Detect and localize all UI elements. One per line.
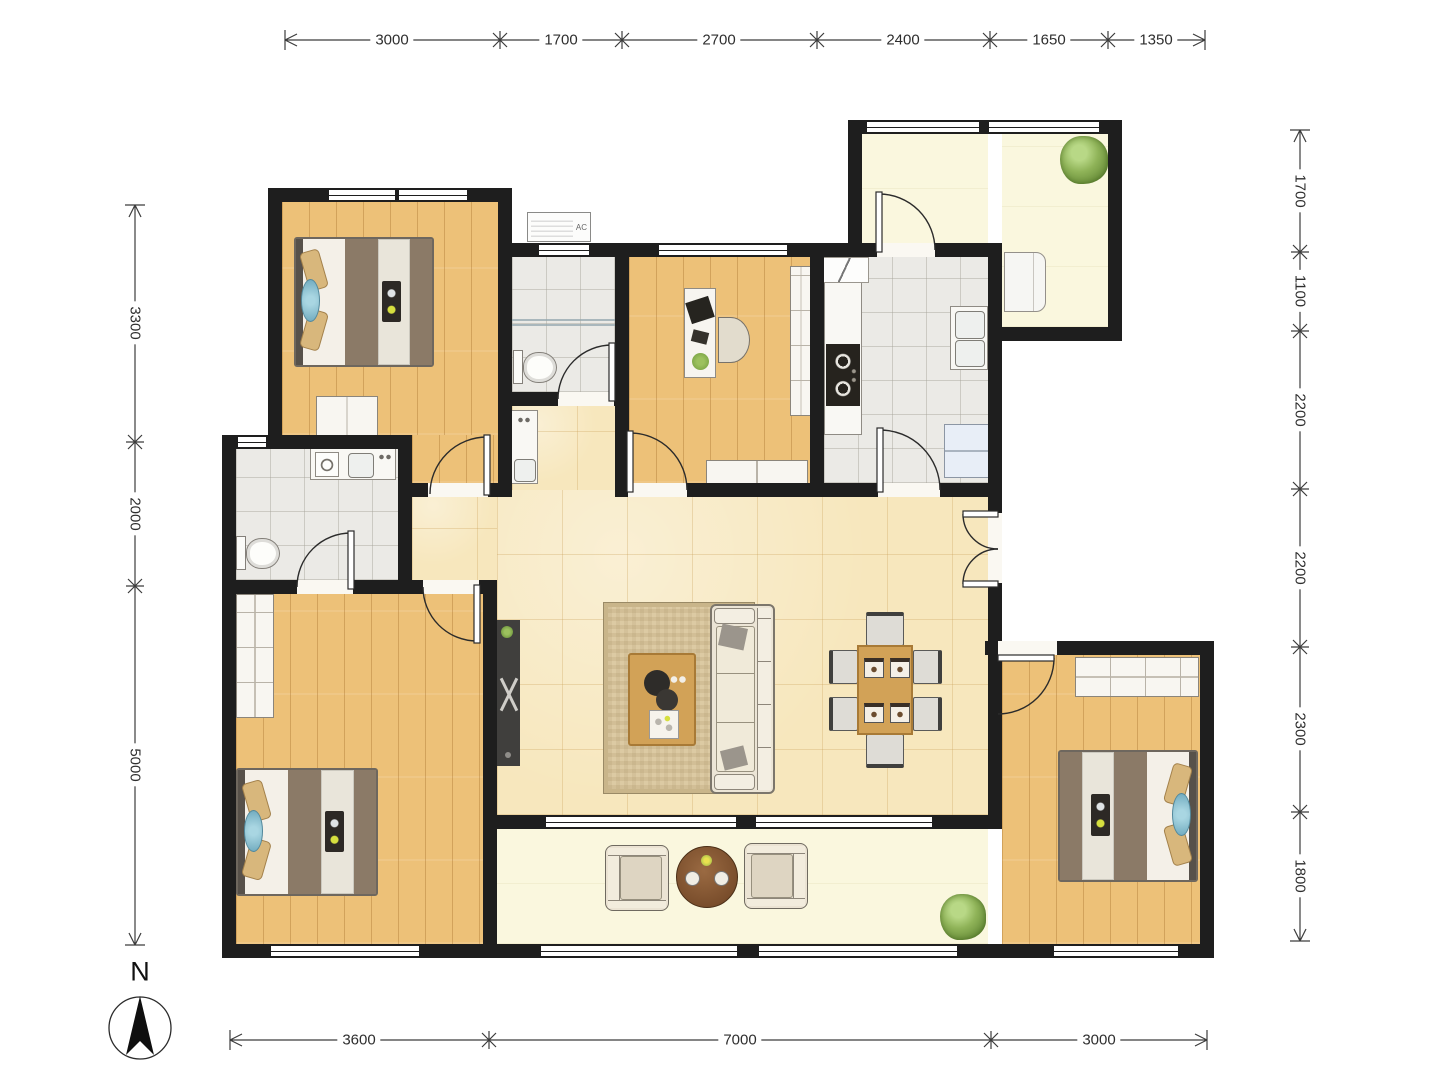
placemat xyxy=(890,703,910,723)
dim-left-0: 3300 xyxy=(127,301,144,344)
refrigerator xyxy=(944,424,990,478)
door-opening-bedroom-bottomleft xyxy=(423,580,479,594)
chair-arm xyxy=(608,848,666,856)
door-opening-entry xyxy=(988,513,1002,583)
chair-arm xyxy=(747,846,805,854)
study-bookcase xyxy=(790,266,812,416)
door-opening-study xyxy=(628,483,687,497)
round-cushion xyxy=(1172,793,1191,837)
compass-icon xyxy=(109,996,171,1059)
sink-basin xyxy=(955,340,985,367)
tray xyxy=(649,710,679,739)
dining-chair xyxy=(866,612,904,646)
cups xyxy=(670,676,686,683)
dim-left-2: 5000 xyxy=(127,743,144,786)
dim-top-5: 1350 xyxy=(1134,32,1177,49)
sink-basin xyxy=(955,311,985,339)
wall-segment xyxy=(222,435,236,594)
sliding-door-living-balcony xyxy=(755,816,933,828)
chair-seat xyxy=(751,854,793,898)
cup xyxy=(714,871,729,886)
wall-segment xyxy=(988,250,1002,655)
door-opening-bedroom-topleft xyxy=(428,483,488,497)
chair-back xyxy=(793,846,805,906)
window xyxy=(866,121,980,133)
sink-basin xyxy=(348,453,374,478)
window xyxy=(538,244,590,256)
desk-plant-icon xyxy=(692,353,709,370)
bed-bottomleft xyxy=(236,768,378,896)
window xyxy=(398,189,468,201)
wall-segment xyxy=(615,243,629,497)
corridor-floor xyxy=(412,483,497,594)
dim-top-0: 3000 xyxy=(370,32,413,49)
window xyxy=(270,945,420,957)
compass-north-label: N xyxy=(130,957,150,988)
sink-counter xyxy=(950,306,988,370)
sofa-armrest xyxy=(714,608,755,624)
dining-table xyxy=(857,645,913,735)
wall-segment xyxy=(498,188,512,497)
wall-segment xyxy=(1108,120,1122,341)
window xyxy=(988,121,1100,133)
plant-icon xyxy=(501,626,513,638)
dining-chair xyxy=(913,697,942,731)
laundry-counter xyxy=(310,448,396,480)
faucet-icon xyxy=(517,417,531,423)
balcony-topright-floor xyxy=(862,134,988,249)
wall-segment xyxy=(848,120,862,257)
knob xyxy=(505,752,511,758)
coffee-table xyxy=(628,653,696,746)
bed-bottomright xyxy=(1058,750,1198,882)
flower-icon xyxy=(701,855,712,866)
dim-top-4: 1650 xyxy=(1027,32,1070,49)
dim-top-1: 1700 xyxy=(539,32,582,49)
ac-grille xyxy=(531,217,573,237)
chair-arm xyxy=(747,898,805,906)
balcony-armchair xyxy=(605,845,669,911)
dim-bottom-1: 7000 xyxy=(718,1032,761,1049)
dim-right-0: 1700 xyxy=(1292,169,1309,212)
placemat xyxy=(890,658,910,678)
wall-segment xyxy=(222,580,236,958)
bowl xyxy=(656,689,678,711)
ac-outdoor-unit: AC xyxy=(527,212,591,242)
bed-tray xyxy=(325,811,344,852)
window xyxy=(658,244,788,256)
toilet-bowl xyxy=(246,538,280,569)
range-hood xyxy=(823,257,869,283)
cup xyxy=(685,871,700,886)
dining-chair xyxy=(866,734,904,768)
wall-segment xyxy=(398,435,412,594)
wardrobe-bottomright xyxy=(1075,657,1199,697)
bed-tray xyxy=(1091,794,1110,836)
toilet-tank xyxy=(236,536,246,570)
window xyxy=(328,189,396,201)
laptop xyxy=(685,296,715,324)
wall-segment xyxy=(268,188,282,449)
dim-top-2: 2700 xyxy=(697,32,740,49)
placemat xyxy=(864,658,884,678)
door-opening-balcony-topright xyxy=(877,243,935,257)
chair-back xyxy=(608,848,620,908)
faucet-icon xyxy=(378,454,392,460)
wall-segment xyxy=(988,641,1002,829)
window xyxy=(758,945,958,957)
study-desk xyxy=(684,288,716,378)
sofa xyxy=(710,604,775,794)
dim-right-2: 2200 xyxy=(1292,388,1309,431)
gas-stove xyxy=(826,344,860,406)
wardrobe-bottomleft xyxy=(236,594,274,718)
dim-top-3: 2400 xyxy=(881,32,924,49)
bed-topleft xyxy=(294,237,434,367)
vanity-counter xyxy=(510,410,538,484)
wall-segment xyxy=(1200,641,1214,958)
wall-segment xyxy=(988,327,1122,341)
placemat xyxy=(864,703,884,723)
window xyxy=(540,945,738,957)
study-floor xyxy=(629,257,810,483)
window xyxy=(1053,945,1179,957)
dim-right-5: 1800 xyxy=(1292,854,1309,897)
toilet-tank xyxy=(513,350,523,384)
door-opening-bathroom-shower xyxy=(558,392,614,406)
balcony-armchair xyxy=(744,843,808,909)
dining-chair xyxy=(829,650,858,684)
chair-arm xyxy=(608,900,666,908)
ac-label: AC xyxy=(576,223,590,232)
dim-right-4: 2300 xyxy=(1292,707,1309,750)
dim-bottom-0: 3600 xyxy=(337,1032,380,1049)
potted-plant-icon xyxy=(1060,136,1108,184)
water-heater xyxy=(1004,252,1046,312)
dim-bottom-2: 3000 xyxy=(1077,1032,1120,1049)
chair-seat xyxy=(620,856,662,900)
sliding-door-living-balcony xyxy=(545,816,737,828)
wall-segment xyxy=(483,580,497,958)
toilet-bowl xyxy=(523,352,557,383)
floor-plan: AC xyxy=(0,0,1440,1080)
notebook xyxy=(691,329,709,345)
bedroom-topleft-floor-ext xyxy=(412,435,498,483)
sofa-back xyxy=(757,608,771,790)
potted-plant-icon xyxy=(940,894,986,940)
sofa-armrest xyxy=(714,774,755,790)
door-opening-bedroom-bottomright xyxy=(998,641,1057,655)
dim-right-3: 2200 xyxy=(1292,546,1309,589)
bed-tray xyxy=(382,281,401,323)
wall-segment xyxy=(810,243,824,497)
door-opening-kitchen xyxy=(878,483,940,497)
balcony-bottom-floor xyxy=(497,829,988,944)
door-opening-bathroom-laundry xyxy=(297,580,353,594)
sink-basin xyxy=(514,459,536,482)
window xyxy=(237,436,267,448)
washing-machine xyxy=(315,452,339,477)
tv-console xyxy=(497,620,520,766)
dresser-topleft xyxy=(316,396,378,439)
dining-chair xyxy=(829,697,858,731)
balcony-round-table xyxy=(676,846,738,908)
dim-right-1: 1100 xyxy=(1292,270,1309,312)
dining-chair xyxy=(913,650,942,684)
dim-left-1: 2000 xyxy=(127,492,144,535)
round-cushion xyxy=(244,810,263,852)
